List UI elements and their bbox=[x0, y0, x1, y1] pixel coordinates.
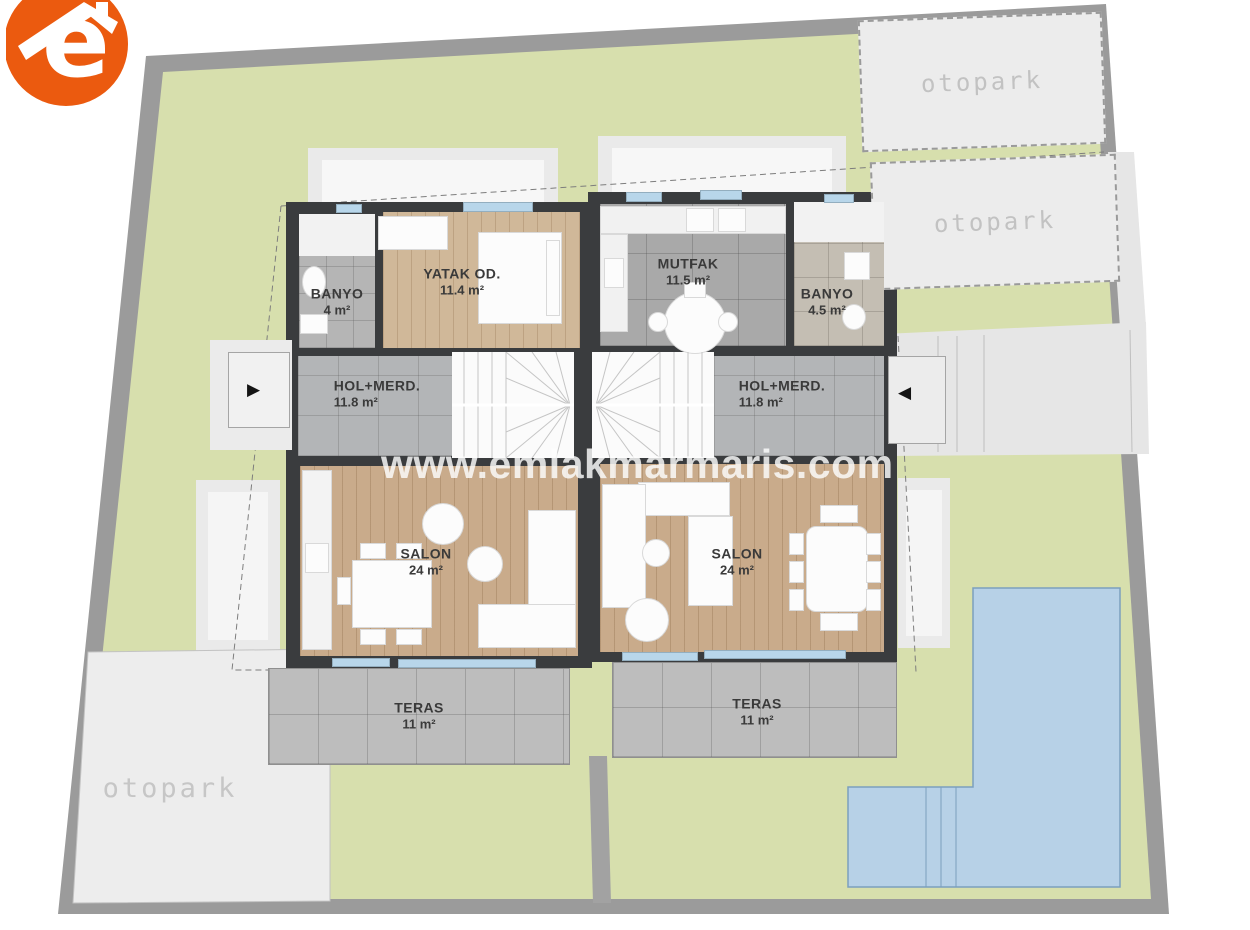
room-label-terrace-left: TERAS 11 m² bbox=[394, 698, 443, 733]
round-rug bbox=[642, 539, 670, 567]
chair bbox=[360, 543, 386, 559]
kitchen-table bbox=[664, 292, 726, 354]
room-label-banyo-right: BANYO 4.5 m² bbox=[801, 284, 854, 319]
watermark: www.emlakmarmaris.com bbox=[381, 441, 894, 488]
room-label-terrace-right: TERAS 11 m² bbox=[732, 694, 781, 729]
round-rug bbox=[422, 503, 464, 545]
dining-table bbox=[806, 526, 868, 612]
chair bbox=[866, 561, 881, 583]
parking-label-bottom-wrap: otopark bbox=[90, 770, 250, 806]
chair bbox=[820, 505, 858, 523]
parking-label-mid: otopark bbox=[933, 206, 1056, 238]
window bbox=[463, 202, 533, 212]
chair bbox=[337, 577, 351, 605]
parking-label-top: otopark bbox=[920, 66, 1043, 98]
brand-logo: e bbox=[6, 0, 156, 125]
entrance-arrow-right-icon: ◀ bbox=[898, 384, 911, 401]
window bbox=[332, 658, 390, 667]
window bbox=[704, 650, 846, 659]
room-vestibule-left bbox=[299, 214, 375, 256]
chair bbox=[718, 312, 738, 332]
chair bbox=[360, 629, 386, 645]
wardrobe bbox=[378, 216, 448, 250]
bed-pillow bbox=[546, 240, 560, 316]
window bbox=[398, 659, 536, 668]
room-label-kitchen-right: MUTFAK 11.5 m² bbox=[658, 254, 719, 289]
side-patio-left bbox=[196, 480, 280, 652]
chair bbox=[648, 312, 668, 332]
floor-plan-canvas: otopark otopark otopark bbox=[0, 0, 1250, 930]
sofa bbox=[602, 484, 646, 608]
chair bbox=[789, 589, 804, 611]
sofa bbox=[528, 510, 576, 606]
chair bbox=[866, 533, 881, 555]
cooktop bbox=[718, 208, 746, 232]
sofa bbox=[478, 604, 576, 648]
parking-label-bottom: otopark bbox=[103, 773, 238, 804]
kitchen-sink bbox=[305, 543, 329, 573]
parking-area-top: otopark bbox=[858, 12, 1106, 152]
room-label-hall-left: HOL+MERD. 11.8 m² bbox=[334, 376, 420, 411]
room-label-hall-right: HOL+MERD. 11.8 m² bbox=[739, 376, 825, 411]
kitchen-sink bbox=[604, 258, 624, 288]
chair bbox=[820, 613, 858, 631]
chair bbox=[396, 629, 422, 645]
room-label-salon-right: SALON 24 m² bbox=[712, 544, 763, 579]
room-label-banyo-left: BANYO 4 m² bbox=[311, 284, 364, 319]
room-label-salon-left: SALON 24 m² bbox=[401, 544, 452, 579]
chair bbox=[789, 533, 804, 555]
chair bbox=[866, 589, 881, 611]
room-banyo-right-entry bbox=[794, 202, 884, 242]
window bbox=[336, 204, 362, 213]
side-patio-right bbox=[898, 478, 950, 648]
sink bbox=[844, 252, 870, 280]
room-label-bedroom-left: YATAK OD. 11.4 m² bbox=[423, 264, 500, 299]
window bbox=[626, 192, 662, 202]
chair bbox=[789, 561, 804, 583]
window bbox=[824, 194, 854, 203]
window bbox=[622, 652, 698, 661]
round-rug bbox=[625, 598, 669, 642]
round-rug bbox=[467, 546, 503, 582]
window bbox=[700, 190, 742, 200]
entrance-step-right bbox=[888, 356, 946, 444]
entrance-arrow-left-icon: ▶ bbox=[247, 381, 260, 398]
logo-letter: e bbox=[42, 0, 110, 100]
parking-area-mid: otopark bbox=[870, 154, 1120, 291]
cooktop bbox=[686, 208, 714, 232]
